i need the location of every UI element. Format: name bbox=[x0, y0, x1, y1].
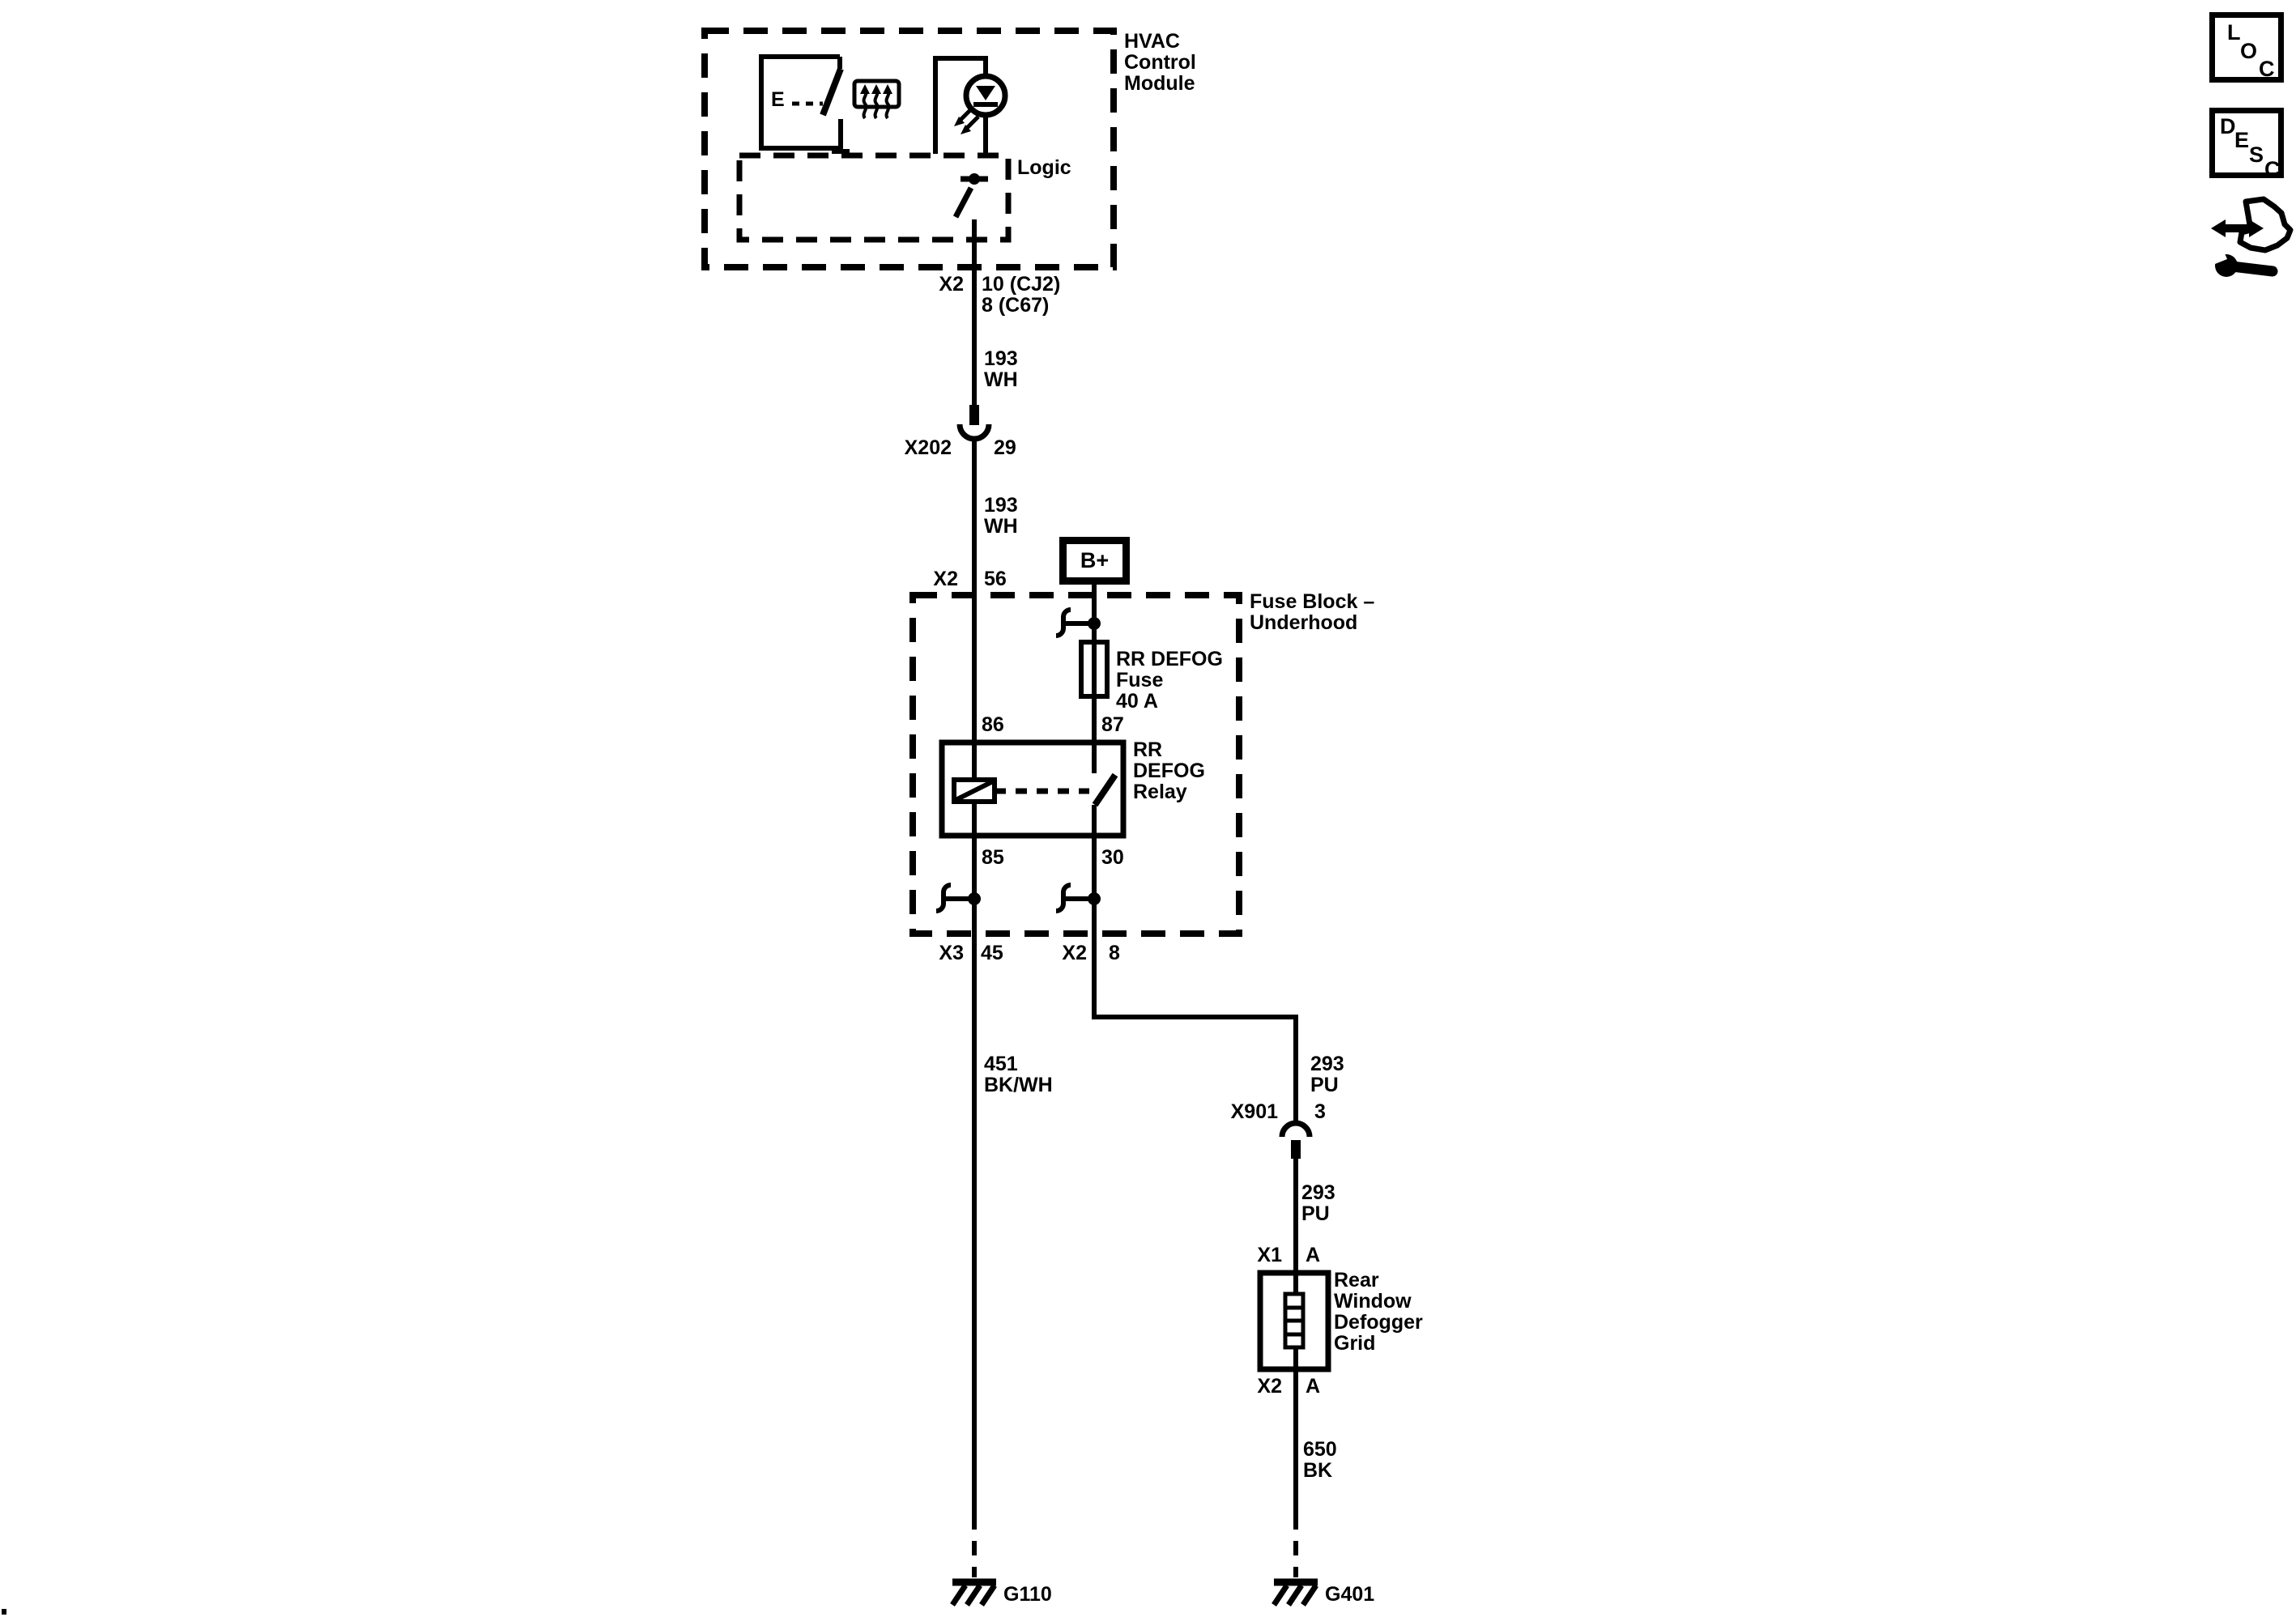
ground-symbol-g110 bbox=[952, 1582, 996, 1605]
wrench-handle bbox=[2232, 266, 2273, 271]
indicator-led-symbol bbox=[935, 58, 1005, 154]
fuseblock-in-connector-label: X2 bbox=[901, 568, 958, 589]
relay-pin-85-label: 85 bbox=[982, 847, 1004, 868]
desc-letter-e: E bbox=[2234, 130, 2249, 151]
logic-switch-symbol bbox=[956, 173, 988, 217]
relay-label: RR DEFOG Relay bbox=[1133, 739, 1205, 802]
hvac-out-pin-label: 10 (CJ2) 8 (C67) bbox=[982, 274, 1060, 316]
wire-label-451bkwh: 451 BK/WH bbox=[984, 1053, 1053, 1096]
x901-pin-label: 3 bbox=[1314, 1101, 1326, 1122]
relay-pin-86-label: 86 bbox=[982, 714, 1004, 735]
bplus-power-tag: B+ bbox=[1059, 537, 1130, 585]
part-outline bbox=[2240, 199, 2290, 250]
heated-rear-window-icon bbox=[854, 81, 899, 118]
wire-label-193wh-1: 193 WH bbox=[984, 348, 1018, 390]
switch-actuator-label: E bbox=[771, 89, 785, 110]
grid-out-pin-label: A bbox=[1306, 1376, 1320, 1397]
fuse-label: RR DEFOG Fuse 40 A bbox=[1116, 649, 1223, 712]
x202-connector-symbol bbox=[960, 405, 989, 439]
desc-letter-s: S bbox=[2249, 144, 2264, 166]
hvac-module-label: HVAC Control Module bbox=[1124, 31, 1196, 94]
grid-in-pin-label: A bbox=[1306, 1245, 1320, 1266]
diagram-tools-icon[interactable] bbox=[2210, 199, 2290, 277]
wire-label-650bk: 650 BK bbox=[1303, 1439, 1337, 1481]
wire-label-293pu-1: 293 PU bbox=[1310, 1053, 1344, 1096]
logic-label: Logic bbox=[1017, 157, 1071, 178]
fuseblock-in-pin-label: 56 bbox=[984, 568, 1007, 589]
relay-contact-blade bbox=[1095, 775, 1115, 805]
wiring-diagram-canvas bbox=[0, 0, 2296, 1617]
loc-letter-o: O bbox=[2240, 40, 2257, 62]
print-dot-artifact bbox=[2, 1609, 6, 1615]
left-arrowhead bbox=[2211, 219, 2226, 237]
circuit-wires bbox=[974, 219, 1296, 1577]
desc-button[interactable]: D E S C bbox=[2209, 108, 2284, 178]
loc-letter-l: L bbox=[2227, 22, 2241, 44]
fuseblock-out-right-connector-label: X2 bbox=[1030, 943, 1087, 964]
defogger-grid-label: Rear Window Defogger Grid bbox=[1334, 1270, 1423, 1354]
switch-blade bbox=[823, 69, 841, 115]
wiring-diagram-page: HVAC Control Module Logic E X2 10 (CJ2) … bbox=[0, 0, 2296, 1617]
hvac-out-connector-label: X2 bbox=[907, 274, 964, 295]
fuseblock-out-left-pin-label: 45 bbox=[981, 943, 1003, 964]
x901-connector-label: X901 bbox=[1212, 1101, 1278, 1122]
ground-g110-label: G110 bbox=[1003, 1584, 1052, 1605]
desc-letter-c: C bbox=[2264, 159, 2281, 181]
ground-symbol-g401 bbox=[1274, 1582, 1318, 1605]
relay-pin-87-label: 87 bbox=[1101, 714, 1124, 735]
relay-pin-30-label: 30 bbox=[1101, 847, 1124, 868]
wire-label-193wh-2: 193 WH bbox=[984, 495, 1018, 537]
x901-connector-symbol bbox=[1282, 1123, 1310, 1159]
x202-pin-label: 29 bbox=[994, 437, 1016, 458]
loc-button[interactable]: L O C bbox=[2209, 12, 2284, 83]
wire-label-293pu-2: 293 PU bbox=[1301, 1182, 1335, 1224]
x202-connector-label: X202 bbox=[879, 437, 952, 458]
fuse-block-title: Fuse Block – Underhood bbox=[1250, 591, 1374, 633]
desc-letter-d: D bbox=[2220, 116, 2236, 138]
loc-letter-c: C bbox=[2259, 58, 2275, 80]
grid-in-connector-label: X1 bbox=[1225, 1245, 1282, 1266]
wire-relay30-to-x901 bbox=[1094, 805, 1296, 1123]
fuseblock-out-left-connector-label: X3 bbox=[907, 943, 964, 964]
ground-g401-label: G401 bbox=[1325, 1584, 1374, 1605]
fuseblock-out-right-pin-label: 8 bbox=[1109, 943, 1120, 964]
grid-out-connector-label: X2 bbox=[1225, 1376, 1282, 1397]
